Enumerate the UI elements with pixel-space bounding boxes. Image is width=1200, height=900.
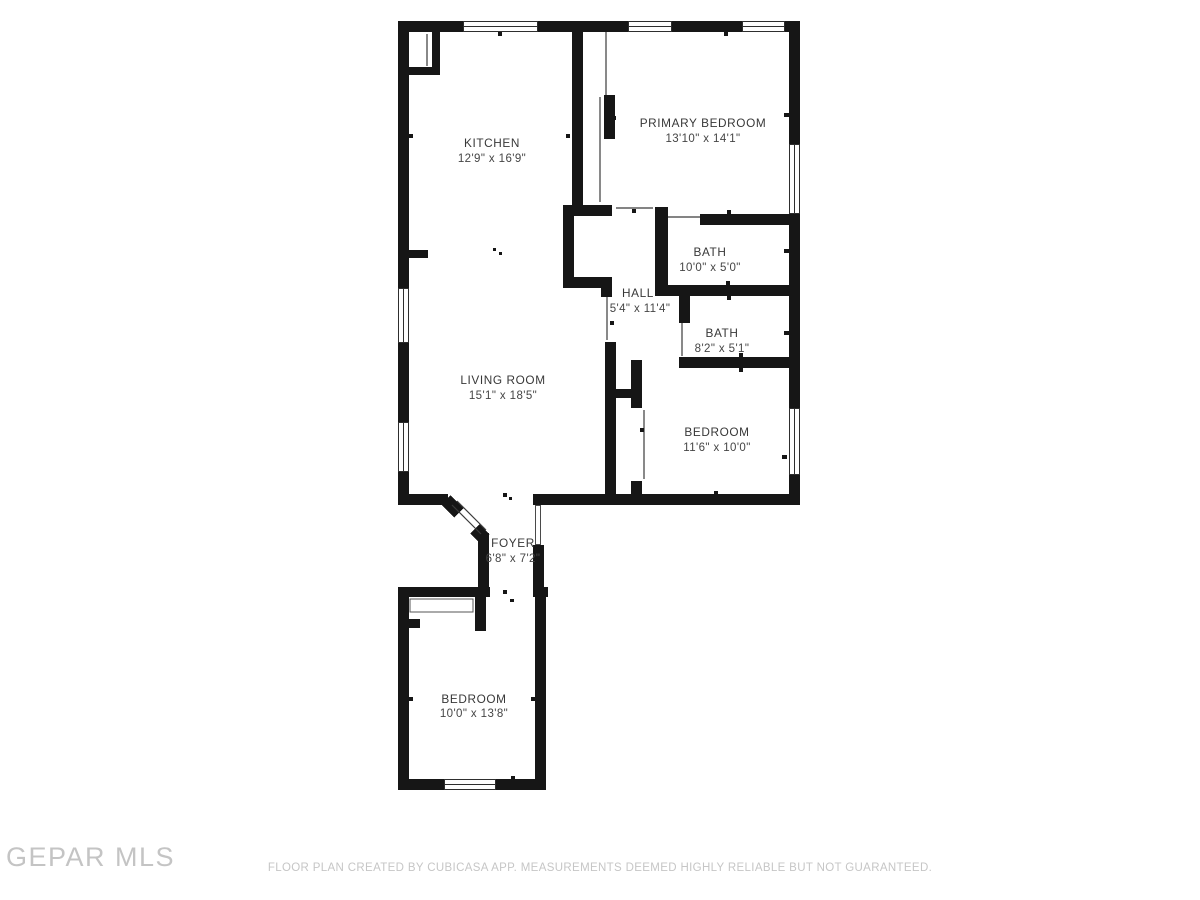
room-dims-hall: 5'4" x 11'4" [610,303,671,315]
room-dims-bedroom-right: 11'6" x 10'0" [683,442,750,454]
room-label-primary-bedroom: PRIMARY BEDROOM [640,116,767,130]
room-label-bath-upper: BATH [694,245,727,259]
window [464,22,538,32]
room-label-bath-lower: BATH [706,326,739,340]
footer-disclaimer: FLOOR PLAN CREATED BY CUBICASA APP. MEAS… [0,862,1200,874]
room-dims-bedroom-bottom: 10'0" x 13'8" [440,708,508,720]
window [790,145,800,214]
room-dims-bath-upper: 10'0" x 5'0" [679,262,740,274]
room-label-bedroom-right: BEDROOM [684,425,749,439]
window [790,409,800,475]
window [629,22,672,32]
room-label-living-room: LIVING ROOM [460,373,545,387]
window [399,289,409,343]
room-label-bedroom-bottom: BEDROOM [441,692,506,706]
room-dims-foyer: 6'8" x 7'2" [486,553,541,565]
room-label-hall: HALL [622,286,654,300]
room-label-kitchen: KITCHEN [464,136,520,150]
window [445,780,496,790]
room-dims-kitchen: 12'9" x 16'9" [458,153,526,165]
room-dims-bath-lower: 8'2" x 5'1" [695,343,750,355]
room-label-foyer: FOYER [491,536,535,550]
floor-plan: KITCHEN 12'9" x 16'9" PRIMARY BEDROOM 13… [0,0,1200,900]
room-dims-living-room: 15'1" x 18'5" [469,390,537,402]
window [743,22,785,32]
room-dims-primary-bedroom: 13'10" x 14'1" [665,133,740,145]
window [399,423,409,472]
